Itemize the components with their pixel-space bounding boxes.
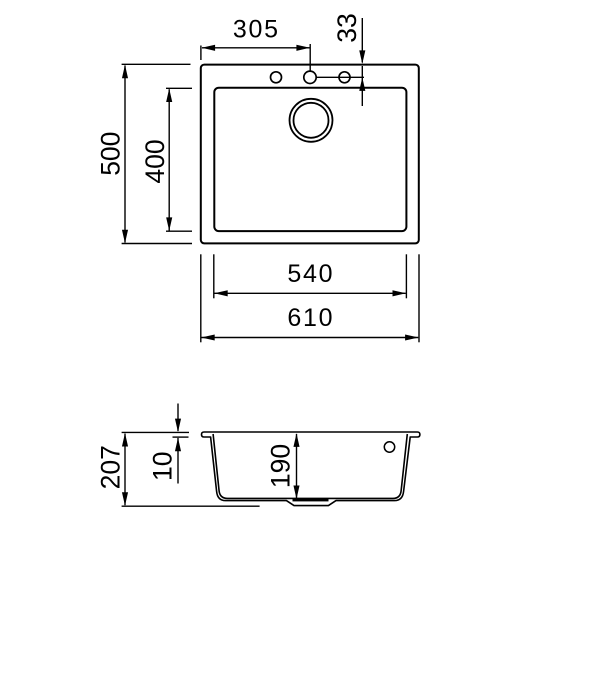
- svg-text:10: 10: [148, 452, 178, 481]
- svg-text:500: 500: [95, 132, 125, 176]
- svg-text:33: 33: [332, 13, 362, 42]
- svg-text:610: 610: [287, 304, 334, 332]
- svg-text:190: 190: [266, 444, 296, 488]
- svg-text:305: 305: [233, 16, 280, 44]
- svg-text:540: 540: [287, 260, 334, 288]
- svg-text:400: 400: [140, 139, 170, 183]
- svg-text:207: 207: [96, 445, 126, 489]
